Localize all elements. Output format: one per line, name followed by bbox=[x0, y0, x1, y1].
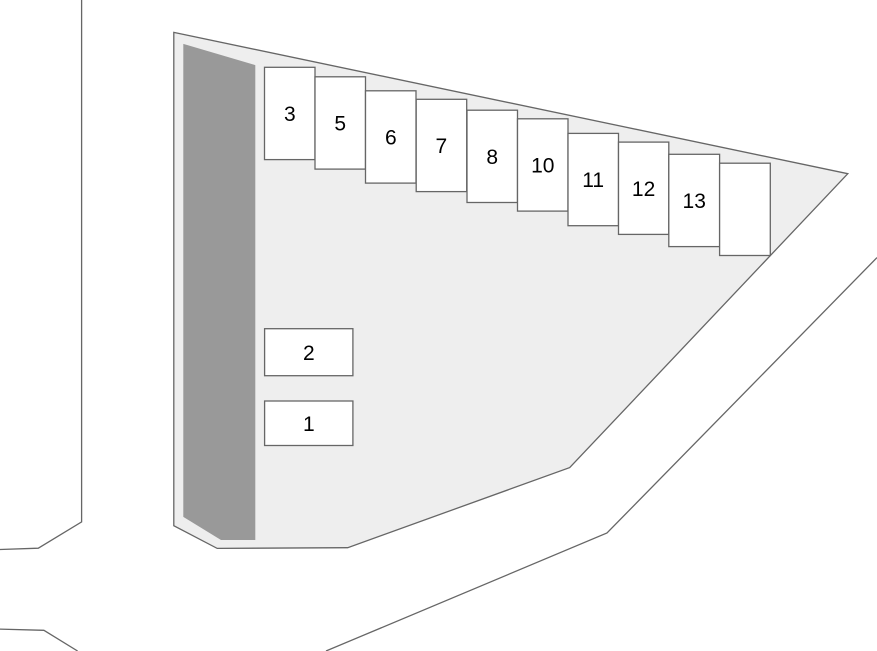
svg-text:11: 11 bbox=[582, 169, 604, 192]
svg-text:1: 1 bbox=[303, 413, 315, 436]
svg-text:10: 10 bbox=[531, 155, 554, 178]
svg-text:12: 12 bbox=[632, 178, 655, 201]
svg-text:5: 5 bbox=[334, 113, 346, 136]
svg-text:13: 13 bbox=[683, 190, 706, 213]
svg-text:3: 3 bbox=[284, 103, 296, 126]
svg-text:8: 8 bbox=[486, 146, 498, 169]
svg-text:7: 7 bbox=[436, 135, 448, 158]
svg-text:2: 2 bbox=[303, 342, 315, 365]
svg-text:6: 6 bbox=[385, 127, 397, 150]
